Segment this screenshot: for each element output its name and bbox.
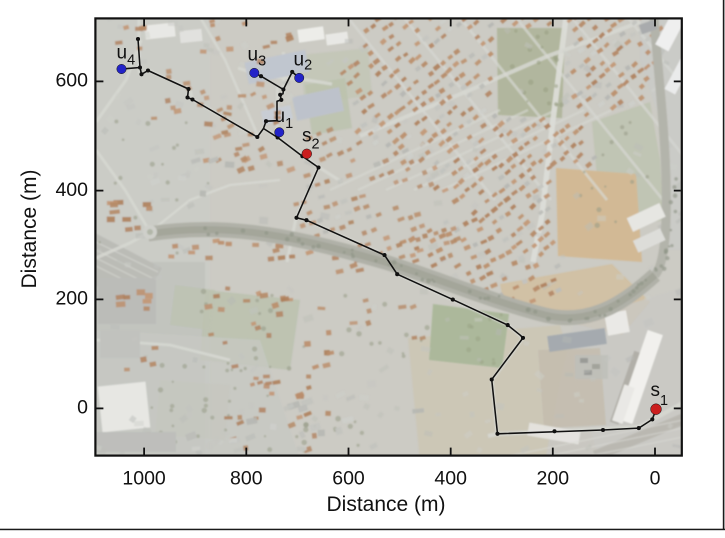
svg-text:800: 800: [230, 468, 263, 490]
svg-text:200: 200: [55, 288, 88, 310]
svg-text:0: 0: [77, 397, 88, 419]
svg-text:400: 400: [55, 179, 88, 201]
svg-text:Distance (m): Distance (m): [18, 169, 41, 288]
svg-text:0: 0: [650, 468, 661, 490]
svg-text:400: 400: [434, 468, 467, 490]
svg-text:600: 600: [332, 468, 365, 490]
svg-text:1000: 1000: [122, 468, 166, 490]
svg-text:200: 200: [537, 468, 570, 490]
svg-text:600: 600: [55, 70, 88, 92]
svg-text:Distance (m): Distance (m): [326, 493, 445, 516]
